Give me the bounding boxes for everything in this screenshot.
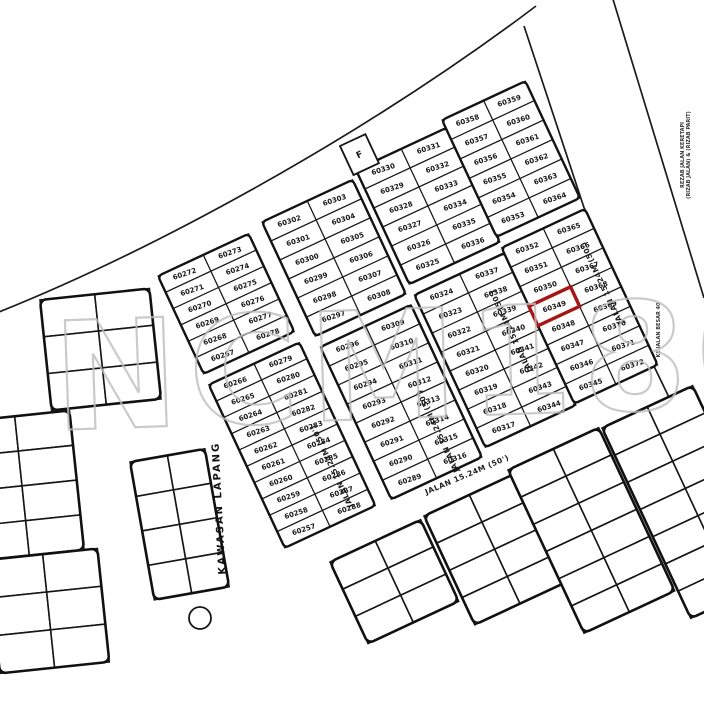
unlabeled-lot-cell (43, 549, 102, 593)
roundabout-circle (189, 607, 211, 629)
unlabeled-lot-cell (0, 630, 55, 674)
watermark: NCM180 (50, 266, 704, 466)
edge-note-top: REZAB JALAN KERETAPI(RIZAB JALAN) & (RIZ… (680, 111, 692, 199)
unlabeled-lot-cell (22, 480, 80, 521)
unlabeled-lot-block (0, 549, 109, 674)
unlabeled-lot-cell (47, 586, 106, 630)
scanned-plot-plan: 6027260273602716027460270602756026960276… (0, 0, 704, 711)
cadastral-map: 6027260273602716027460270602756026960276… (0, 0, 704, 711)
unlabeled-lot-cell (51, 624, 110, 668)
unlabeled-lot-cell (0, 592, 51, 636)
unlabeled-lot-cell (0, 554, 47, 598)
